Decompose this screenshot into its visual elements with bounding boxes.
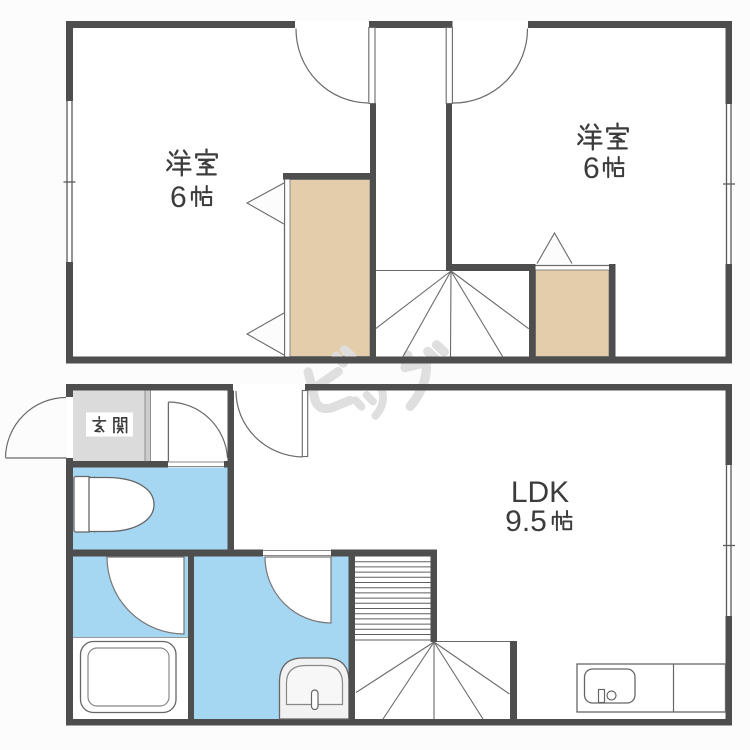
svg-text:9.5: 9.5 <box>505 505 547 538</box>
svg-text:6: 6 <box>170 181 187 214</box>
svg-text:6: 6 <box>583 152 600 185</box>
